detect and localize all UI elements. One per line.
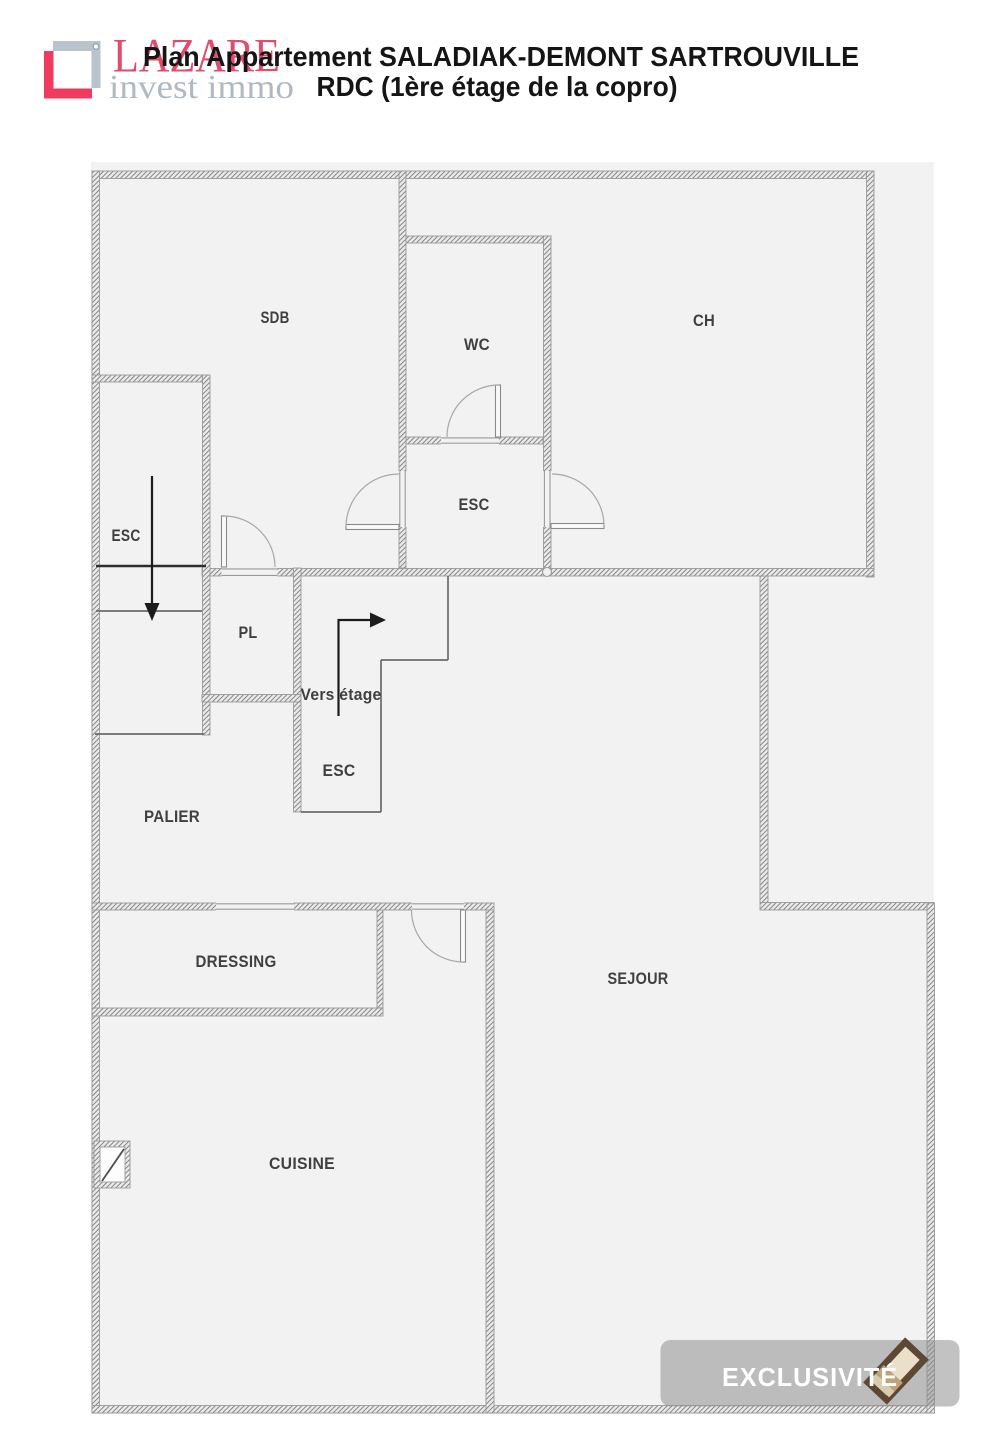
svg-text:SEJOUR: SEJOUR: [608, 969, 669, 988]
svg-text:invest immo: invest immo: [109, 69, 294, 106]
svg-text:WC: WC: [464, 335, 490, 354]
svg-text:Vers étage: Vers étage: [301, 685, 382, 704]
svg-text:ESC: ESC: [459, 495, 490, 514]
svg-text:PALIER: PALIER: [144, 807, 200, 826]
svg-text:Plan Appartement SALADIAK-DEMO: Plan Appartement SALADIAK-DEMONT SARTROU…: [143, 41, 859, 72]
svg-text:PL: PL: [239, 623, 258, 642]
svg-text:SDB: SDB: [261, 308, 290, 327]
svg-text:ESC: ESC: [323, 761, 356, 780]
svg-text:ESC: ESC: [112, 526, 141, 545]
svg-text:CUISINE: CUISINE: [269, 1154, 335, 1173]
svg-text:EXCLUSIVITÉ: EXCLUSIVITÉ: [722, 1362, 898, 1392]
svg-text:DRESSING: DRESSING: [196, 952, 277, 971]
svg-text:CH: CH: [693, 311, 715, 330]
svg-text:RDC (1ère étage de la copro): RDC (1ère étage de la copro): [317, 71, 678, 102]
